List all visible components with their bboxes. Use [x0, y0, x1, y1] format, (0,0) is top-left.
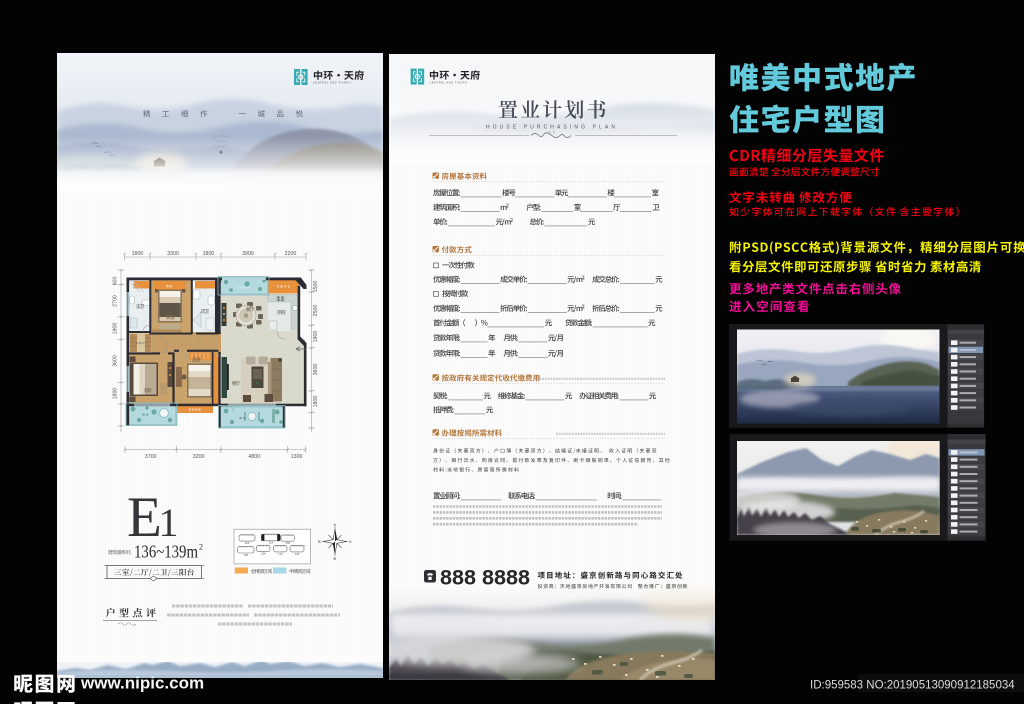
svg-text:1500: 1500	[313, 281, 319, 293]
svg-text:3600: 3600	[313, 364, 319, 376]
svg-text:26#: 26#	[285, 541, 290, 545]
svg-text:21#: 21#	[269, 541, 274, 545]
svg-text:888 8888: 888 8888	[440, 567, 530, 590]
svg-text:CENTRAL AND TIANFU: CENTRAL AND TIANFU	[313, 81, 351, 85]
svg-text:1800: 1800	[313, 396, 319, 408]
svg-text:A N D: A N D	[217, 140, 224, 144]
svg-text:3200: 3200	[193, 454, 205, 460]
svg-text:1900: 1900	[313, 331, 319, 343]
svg-text:3300: 3300	[167, 251, 179, 257]
svg-text:2: 2	[199, 543, 203, 552]
svg-text:T I A N F U: T I A N F U	[214, 145, 228, 149]
svg-text:ID:959583 NO:20190513090912185: ID:959583 NO:20190513090912185034	[810, 680, 1015, 692]
svg-text:136~139m: 136~139m	[134, 542, 198, 562]
svg-text:1900: 1900	[113, 323, 119, 335]
svg-text:16#: 16#	[295, 552, 300, 556]
svg-text:3900: 3900	[242, 251, 254, 257]
svg-text:4800: 4800	[248, 454, 260, 460]
svg-text:www.nipic.com: www.nipic.com	[80, 674, 204, 693]
svg-text:1800: 1800	[203, 251, 215, 257]
svg-text:22#: 22#	[245, 541, 250, 545]
svg-text:600: 600	[113, 277, 119, 286]
svg-text:2200: 2200	[285, 251, 297, 257]
svg-text:1800: 1800	[132, 251, 144, 257]
svg-text:1800: 1800	[113, 388, 119, 400]
svg-text:1300: 1300	[291, 454, 303, 460]
svg-text:17#: 17#	[278, 552, 283, 556]
svg-text:18#: 18#	[261, 552, 266, 556]
svg-text:3700: 3700	[145, 454, 157, 460]
svg-text:E: E	[127, 486, 162, 549]
svg-text:3600: 3600	[113, 355, 119, 367]
svg-text:1: 1	[159, 500, 179, 545]
svg-text:CENTRAL AND TIANFU: CENTRAL AND TIANFU	[430, 80, 468, 84]
svg-text:C E N T R A L: C E N T R A L	[212, 135, 230, 139]
svg-text:19#: 19#	[244, 553, 249, 557]
svg-text:2700: 2700	[113, 295, 119, 307]
svg-text:HOUSE PURCHASING PLAN: HOUSE PURCHASING PLAN	[486, 125, 618, 131]
svg-text:2500: 2500	[313, 305, 319, 317]
